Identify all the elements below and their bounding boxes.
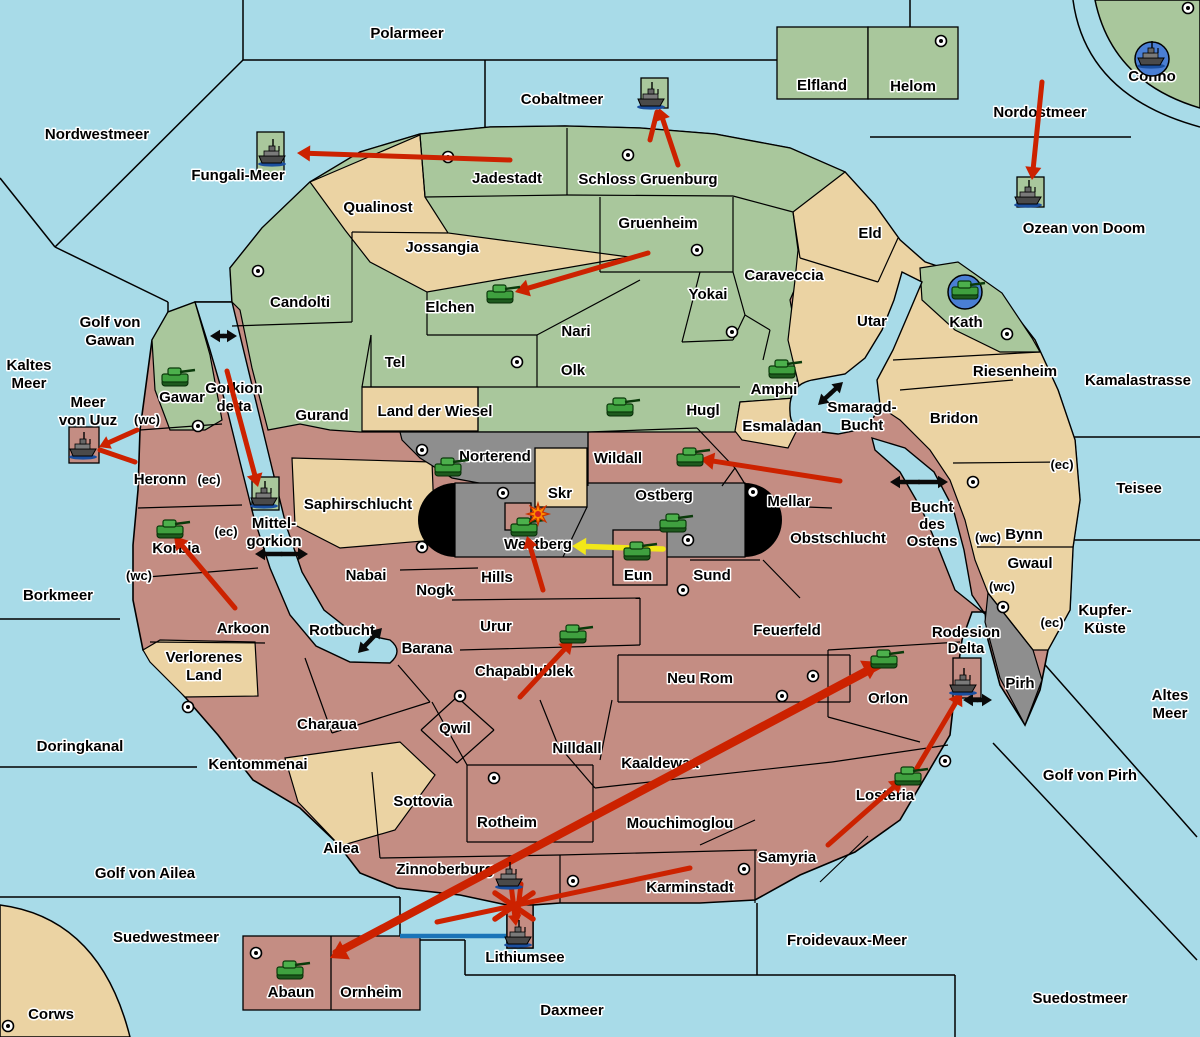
label-kaltes-line0: Kaltes (6, 357, 51, 374)
ship-hull (950, 685, 976, 692)
label-karminstadt: Karminstadt (646, 879, 734, 896)
label-ostberg: Ostberg (635, 487, 693, 504)
ship-deck (510, 932, 525, 937)
city-dot-14 (678, 585, 689, 596)
city-dot-inner (256, 269, 260, 273)
label-nari: Nari (561, 323, 590, 340)
label-esmaladan: Esmaladan (742, 418, 821, 435)
tank-turret (630, 542, 643, 549)
city-dot-16 (998, 602, 1009, 613)
label-rotheim: Rotheim (477, 814, 537, 831)
label-rodesion-line1: Delta (948, 640, 985, 657)
label-gruenheim: Gruenheim (618, 215, 697, 232)
label-elchen: Elchen (425, 299, 474, 316)
city-dot-11 (498, 488, 509, 499)
label-westberg: Westberg (504, 536, 572, 553)
city-dot-inner (939, 39, 943, 43)
coast-marker-wc-6: (wc) (989, 579, 1015, 594)
label-eld: Eld (858, 225, 881, 242)
ship-deck (264, 151, 279, 156)
label-hugl: Hugl (686, 402, 719, 419)
tank-turret (283, 961, 296, 968)
city-dot-13 (748, 487, 759, 498)
city-dot-inner (943, 759, 947, 763)
label-qwil: Qwil (439, 720, 471, 737)
label-meer-line0: Meer (70, 394, 105, 411)
label-eun: Eun (624, 567, 652, 584)
label-ailea: Ailea (323, 840, 360, 857)
label-yokai: Yokai (689, 286, 728, 303)
label-schloss-gruenburg: Schloss Gruenburg (578, 171, 717, 188)
label-bynn: Bynn (1005, 526, 1043, 543)
label-arkoon: Arkoon (217, 620, 270, 637)
coast-marker-ec-4: (ec) (1050, 457, 1073, 472)
label-daxmeer: Daxmeer (540, 1002, 604, 1019)
city-dot-9 (1002, 329, 1013, 340)
label-jossangia: Jossangia (405, 239, 479, 256)
label-bucht-line2: Ostens (907, 533, 958, 550)
ship-tower (269, 146, 275, 151)
city-dot-inner (686, 538, 690, 542)
label-suedostmeer: Suedostmeer (1032, 990, 1127, 1007)
ship-deck (955, 680, 970, 685)
city-dot-21 (739, 864, 750, 875)
label-rotbucht: Rotbucht (309, 622, 375, 639)
label-altes-line1: Meer (1152, 705, 1187, 722)
city-dot-inner (626, 153, 630, 157)
label-saphirschlucht: Saphirschlucht (304, 496, 412, 513)
label-gawar: Gawar (159, 389, 205, 406)
explosion-icon (527, 503, 549, 525)
label-chapablublek: Chapablublek (475, 663, 574, 680)
label-utar: Utar (857, 313, 887, 330)
label-obstschlucht: Obstschlucht (790, 530, 886, 547)
city-dot-12 (683, 535, 694, 546)
label-fungali-meer: Fungali-Meer (191, 167, 285, 184)
tank-turret (493, 285, 506, 292)
city-dot-23 (940, 756, 951, 767)
label-gwaul: Gwaul (1007, 555, 1052, 572)
label-meer-line1: von Uuz (59, 412, 117, 429)
ship-deck (1020, 192, 1035, 197)
city-dot-inner (420, 545, 424, 549)
ship-tower (261, 488, 267, 493)
label-land-der-wiesel: Land der Wiesel (378, 403, 493, 420)
city-dot-6 (727, 327, 738, 338)
ship-deck (501, 874, 516, 879)
label-abaun: Abaun (268, 984, 315, 1001)
label-skr: Skr (548, 485, 572, 502)
coast-marker-wc-3: (wc) (126, 568, 152, 583)
city-dot-inner (811, 674, 815, 678)
label-rodesion-line0: Rodesion (932, 624, 1000, 641)
city-dot-inner (681, 588, 685, 592)
city-dot-inner (730, 330, 734, 334)
tank-turret (775, 360, 788, 367)
label-hills: Hills (481, 569, 513, 586)
ship-tower (1025, 187, 1031, 192)
ship-conno[interactable] (1135, 41, 1169, 76)
ship-tower (506, 869, 512, 874)
city-dot-19 (489, 773, 500, 784)
label-jadestadt: Jadestadt (472, 170, 542, 187)
city-dot-inner (780, 694, 784, 698)
city-dot-inner (571, 879, 575, 883)
label-smaragd--line0: Smaragd- (827, 399, 896, 416)
city-dot-20 (568, 876, 579, 887)
ship-tower (80, 439, 86, 444)
tank-turret (163, 520, 176, 527)
label-smaragd--line1: Bucht (841, 417, 884, 434)
city-dot-17 (183, 702, 194, 713)
city-dot-inner (515, 360, 519, 364)
label-norterend: Norterend (459, 448, 531, 465)
ship-tower (960, 675, 966, 680)
city-dot-inner (6, 1024, 10, 1028)
city-dot-26 (417, 542, 428, 553)
city-dot-15 (968, 477, 979, 488)
tank-turret (168, 368, 181, 375)
label-froidevaux-meer: Froidevaux-Meer (787, 932, 907, 949)
label-nabai: Nabai (346, 567, 387, 584)
city-dot-inner (1001, 605, 1005, 609)
label-wildall: Wildall (594, 450, 642, 467)
city-dot-18 (455, 691, 466, 702)
label-golf-von-pirh: Golf von Pirh (1043, 767, 1137, 784)
city-dot-22 (777, 691, 788, 702)
ship-hull (638, 99, 664, 106)
label-kupfer--line0: Kupfer- (1078, 602, 1131, 619)
label-mellar: Mellar (767, 493, 811, 510)
city-dot-inner (420, 448, 424, 452)
label-golf-von-line1: Gawan (85, 332, 134, 349)
city-dot-inner (196, 424, 200, 428)
label-gurand: Gurand (295, 407, 348, 424)
city-dot-25 (3, 1021, 14, 1032)
coast-marker-ec-2: (ec) (214, 524, 237, 539)
city-dot-3 (1183, 3, 1194, 14)
label-kentommenai: Kentommenai (208, 756, 307, 773)
label-nordwestmeer: Nordwestmeer (45, 126, 149, 143)
explosion-core (535, 511, 541, 517)
ship-hull (251, 498, 277, 505)
label-polarmeer: Polarmeer (370, 25, 444, 42)
label-mittel--line1: gorkion (247, 533, 302, 550)
city-dot-1 (623, 150, 634, 161)
label-neu-rom: Neu Rom (667, 670, 733, 687)
city-dot-inner (1005, 332, 1009, 336)
label-heronn: Heronn (134, 471, 187, 488)
ship-hull (70, 449, 96, 456)
label-verlorenes-line1: Land (186, 667, 222, 684)
game-map: PolarmeerNordwestmeerCobaltmeerFungali-M… (0, 0, 1200, 1037)
label-orlon: Orlon (868, 690, 908, 707)
city-dot-inner (501, 491, 505, 495)
label-mouchimoglou: Mouchimoglou (627, 815, 734, 832)
city-dot-7 (512, 357, 523, 368)
city-dot-inner (254, 951, 258, 955)
city-dot-5 (692, 245, 703, 256)
tank-turret (666, 514, 679, 521)
ship-deck (256, 493, 271, 498)
label-corws: Corws (28, 1006, 74, 1023)
coast-marker-ec-1: (ec) (197, 472, 220, 487)
city-dot-inner (971, 480, 975, 484)
label-altes-line0: Altes (1152, 687, 1189, 704)
label-nogk: Nogk (416, 582, 454, 599)
label-caraveccia: Caraveccia (744, 267, 824, 284)
label-pirh: Pirh (1005, 675, 1034, 692)
label-doringkanal: Doringkanal (37, 738, 124, 755)
label-bucht-line1: des (919, 516, 945, 533)
label-tel: Tel (385, 354, 406, 371)
label-verlorenes-line0: Verlorenes (166, 649, 243, 666)
label-bridon: Bridon (930, 410, 978, 427)
label-amphi: Amphi (751, 381, 798, 398)
ship-hull (1138, 58, 1164, 65)
label-ozean-von-doom: Ozean von Doom (1023, 220, 1146, 237)
tank-turret (613, 398, 626, 405)
city-dot-4 (253, 266, 264, 277)
ship-hull (496, 879, 522, 886)
tank-turret (901, 767, 914, 774)
label-cobaltmeer: Cobaltmeer (521, 91, 604, 108)
city-dot-inner (1186, 6, 1190, 10)
ship-tower (1148, 48, 1154, 53)
label-bucht-line0: Bucht (911, 499, 954, 516)
label-sund: Sund (693, 567, 731, 584)
label-riesenheim: Riesenheim (973, 363, 1057, 380)
label-olk: Olk (561, 362, 586, 379)
map-svg: PolarmeerNordwestmeerCobaltmeerFungali-M… (0, 0, 1200, 1037)
ship-deck (643, 94, 658, 99)
label-samyria: Samyria (758, 849, 817, 866)
ship-hull (259, 156, 285, 163)
tank-turret (566, 625, 579, 632)
city-dot-8 (193, 421, 204, 432)
label-golf-von-ailea: Golf von Ailea (95, 865, 196, 882)
ship-hull (1015, 197, 1041, 204)
label-mittel--line0: Mittel- (252, 515, 296, 532)
label-charaua: Charaua (297, 716, 358, 733)
tank-turret (517, 518, 530, 525)
tank-turret (683, 448, 696, 455)
tank-turret (877, 650, 890, 657)
ship-tower (648, 89, 654, 94)
label-urur: Urur (480, 618, 512, 635)
ship-tower (515, 927, 521, 932)
label-nilldall: Nilldall (552, 740, 601, 757)
label-borkmeer: Borkmeer (23, 587, 93, 604)
city-dot-inner (458, 694, 462, 698)
coast-marker-wc-5: (wc) (975, 530, 1001, 545)
tank-turret (958, 281, 971, 288)
label-kamalastrasse: Kamalastrasse (1085, 372, 1191, 389)
ship-deck (75, 444, 90, 449)
label-kath: Kath (949, 314, 982, 331)
city-dot-inner (742, 867, 746, 871)
label-helom: Helom (890, 78, 936, 95)
label-feuerfeld: Feuerfeld (753, 622, 821, 639)
label-golf-von-line0: Golf von (80, 314, 141, 331)
coast-marker-ec-7: (ec) (1040, 615, 1063, 630)
city-dot-10 (417, 445, 428, 456)
coast-marker-wc-0: (wc) (134, 412, 160, 427)
city-dot-27 (808, 671, 819, 682)
label-candolti: Candolti (270, 294, 330, 311)
label-teisee: Teisee (1116, 480, 1162, 497)
label-qualinost: Qualinost (343, 199, 412, 216)
label-sottovia: Sottovia (393, 793, 453, 810)
label-kaltes-line1: Meer (11, 375, 46, 392)
city-dot-inner (492, 776, 496, 780)
ship-hull (505, 937, 531, 944)
city-dot-inner (751, 490, 755, 494)
tank-turret (441, 458, 454, 465)
label-ornheim: Ornheim (340, 984, 402, 1001)
city-dot-24 (251, 948, 262, 959)
label-kupfer--line1: Küste (1084, 620, 1126, 637)
label-barana: Barana (402, 640, 454, 657)
ship-deck (1143, 53, 1158, 58)
city-dot-inner (186, 705, 190, 709)
label-suedwestmeer: Suedwestmeer (113, 929, 219, 946)
city-dot-2 (936, 36, 947, 47)
city-dot-inner (695, 248, 699, 252)
label-lithiumsee: Lithiumsee (485, 949, 564, 966)
label-elfland: Elfland (797, 77, 847, 94)
